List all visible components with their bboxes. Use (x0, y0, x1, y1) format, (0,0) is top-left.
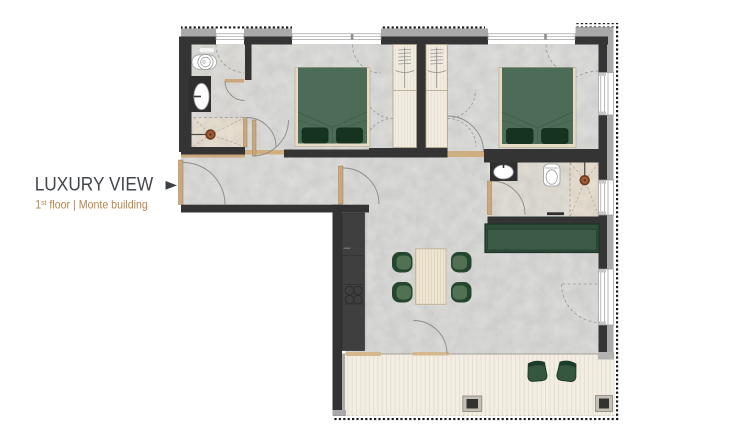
svg-text:1st floor | Monte building: 1st floor | Monte building (35, 198, 147, 212)
svg-text:LUXURY VIEW: LUXURY VIEW (35, 175, 154, 196)
